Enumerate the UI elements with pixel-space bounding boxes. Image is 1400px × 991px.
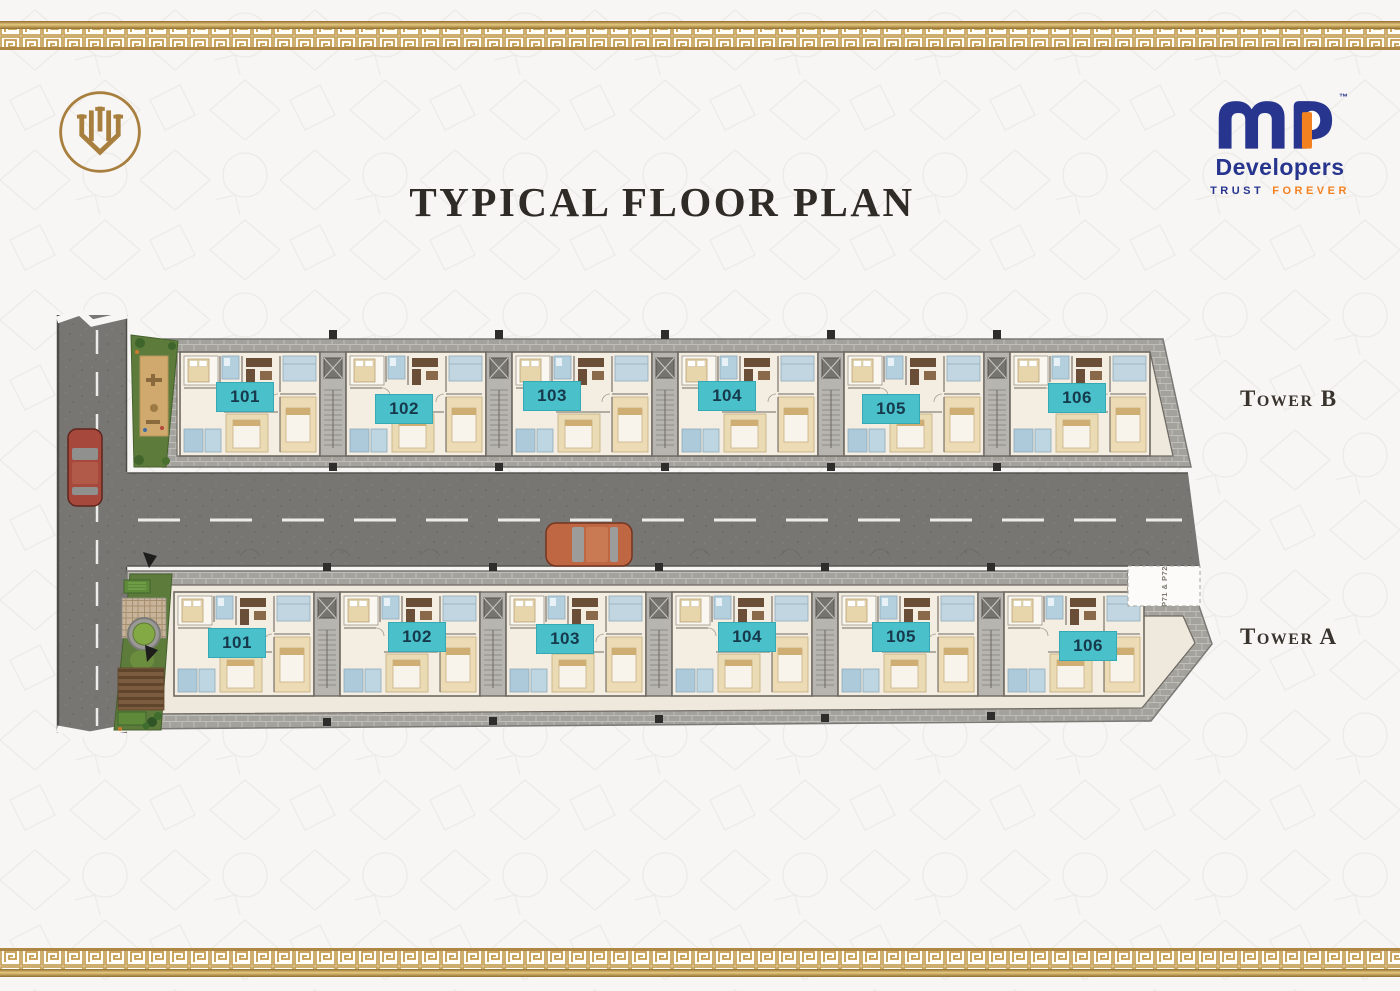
page: ™ Developers TRUSTFOREVER TYPICAL FLOOR … <box>0 0 1400 991</box>
unit-badge-a-102: 102 <box>388 622 446 652</box>
unit-badge-a-106: 106 <box>1059 631 1117 661</box>
unit-badge-b-103: 103 <box>523 381 581 411</box>
tower-a-label: Tower A <box>1240 624 1380 650</box>
orange-car <box>546 523 632 566</box>
unit-badge-a-103: 103 <box>536 624 594 654</box>
unit-badge-b-104: 104 <box>698 381 756 411</box>
unit-badge-b-101: 101 <box>216 382 274 412</box>
left-road <box>57 312 127 735</box>
unit-badge-a-101: 101 <box>208 628 266 658</box>
unit-badge-a-105: 105 <box>872 622 930 652</box>
unit-badge-b-106: 106 <box>1048 383 1106 413</box>
red-car <box>68 429 102 506</box>
tower-b-building <box>163 330 1191 471</box>
main-road <box>127 473 1200 566</box>
parking-label: P71 & P72 <box>1128 566 1200 606</box>
tower-b-label: Tower B <box>1240 386 1380 412</box>
tower-a-building <box>127 563 1212 729</box>
unit-badge-a-104: 104 <box>718 622 776 652</box>
unit-badge-b-105: 105 <box>862 394 920 424</box>
site-plan <box>0 0 1400 991</box>
parking-label-text: P71 & P72 <box>1160 566 1169 607</box>
unit-badge-b-102: 102 <box>375 394 433 424</box>
